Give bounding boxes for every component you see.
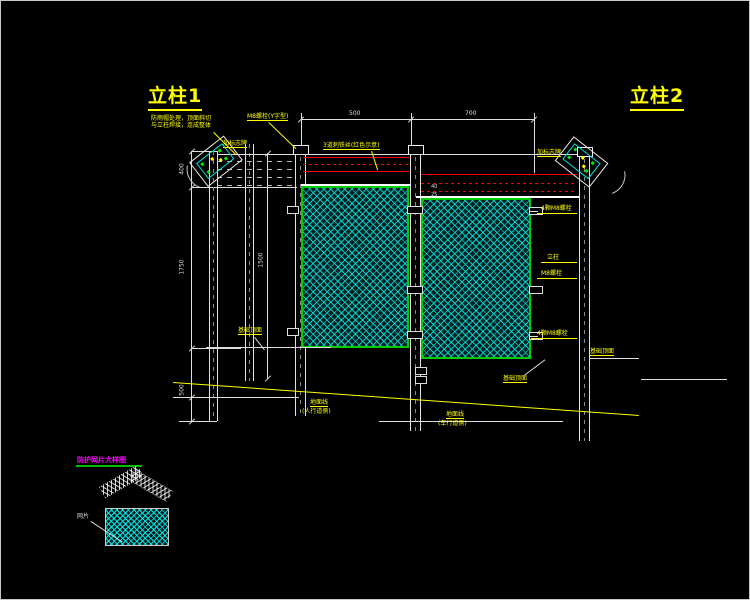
- bolt-callout-4: 4颗M8螺栓: [537, 330, 568, 337]
- dim-text-top2: 700: [465, 111, 476, 117]
- foundation-top-label-left: 基础顶面: [238, 327, 262, 335]
- dim-text-top1: 500: [349, 111, 360, 117]
- mesh-panel-1: [301, 186, 409, 348]
- connector-plate: [407, 331, 423, 339]
- mesh-panel-2: [421, 198, 531, 359]
- ground-side-right: (车行道侧): [438, 420, 467, 427]
- detail-mesh-sample: [105, 508, 169, 546]
- rail-dashed: [217, 185, 297, 186]
- leader-baseline: [589, 358, 639, 359]
- anchor-block: [415, 376, 427, 384]
- leader-line: [254, 337, 265, 350]
- bolt-callout-3: M8螺栓: [541, 270, 562, 277]
- dim-text-panel-height: 1500: [259, 252, 265, 267]
- leader-baseline: [537, 213, 577, 214]
- ground-slope-line: [173, 382, 639, 416]
- leader-baseline: [537, 278, 577, 279]
- leader-line: [268, 122, 296, 149]
- cap-note: 防雨帽处理，顶面斜切 与立柱焊接，连成整体: [151, 115, 211, 129]
- foundation-top-line: [206, 347, 331, 348]
- cap-note-line2: 与立柱焊接，连成整体: [151, 122, 211, 129]
- view-title-column2: 立柱2: [630, 81, 684, 111]
- barbed-wire-line: [421, 183, 577, 184]
- barbed-wire-line: [303, 157, 409, 158]
- ground-label-right: 地面线: [446, 411, 464, 419]
- dim-line-top: [301, 119, 534, 120]
- sign-label-right: 加标志牌: [537, 149, 561, 157]
- connector-plate: [529, 286, 543, 294]
- bolt-callout-2: 立柱: [547, 254, 559, 261]
- leader-line: [530, 211, 538, 212]
- detail-mesh-label: 网片: [77, 514, 89, 520]
- dim-text-left2: 1750: [180, 259, 186, 274]
- detail-roof-mesh-right: [129, 469, 174, 502]
- dim-tick: [265, 375, 271, 381]
- barbed-wire-line: [421, 191, 577, 192]
- connector-plate: [287, 328, 299, 336]
- ground-side-left: (人行道侧): [302, 408, 331, 415]
- sign-label-left: 加标志牌: [223, 140, 247, 148]
- dim-text-gap1: 40: [431, 184, 437, 190]
- barbed-wire-label: 3道刺铁丝(红色示意): [323, 142, 380, 150]
- cap-note-line1: 防雨帽处理，顶面斜切: [151, 115, 211, 122]
- connector-plate: [407, 206, 423, 214]
- anchor-block: [415, 367, 427, 375]
- leader-baseline: [541, 262, 577, 263]
- barbed-wire-line: [303, 171, 409, 172]
- dim-line-inner: [267, 153, 268, 379]
- dim-text-left3: 500: [180, 384, 186, 395]
- barbed-wire-line: [421, 174, 577, 175]
- cad-drawing-canvas[interactable]: 立柱1 立柱2 500 700 400 1750 500 1500: [0, 0, 750, 600]
- connector-plate: [287, 206, 299, 214]
- leader-line: [524, 359, 545, 375]
- leader-baseline: [531, 338, 577, 339]
- barbed-wire-line: [303, 164, 409, 165]
- connector-plate: [407, 286, 423, 294]
- leader-line: [530, 336, 538, 337]
- ground-line-far-right: [641, 379, 727, 380]
- cap-bolt-label: M8螺栓(Y字型): [247, 113, 288, 121]
- ground-label-left: 地面线: [310, 399, 328, 407]
- ground-line-right: [379, 421, 563, 422]
- foundation-top-label-mid: 基础顶面: [503, 375, 527, 383]
- top-rail-line: [217, 154, 577, 155]
- dim-extension-line: [179, 421, 217, 422]
- bolt-callout-1: 4颗M8螺栓: [541, 205, 572, 212]
- left-post-2: [245, 144, 254, 381]
- dim-line-left: [191, 151, 192, 421]
- ground-line-left: [173, 397, 299, 398]
- detail-view-title: 防护网片大样图: [77, 455, 126, 465]
- dim-extension-line: [534, 113, 535, 173]
- foundation-top-label-right: 基础顶面: [590, 348, 614, 356]
- view-title-column1: 立柱1: [148, 81, 202, 111]
- dim-text-left1: 400: [180, 163, 186, 174]
